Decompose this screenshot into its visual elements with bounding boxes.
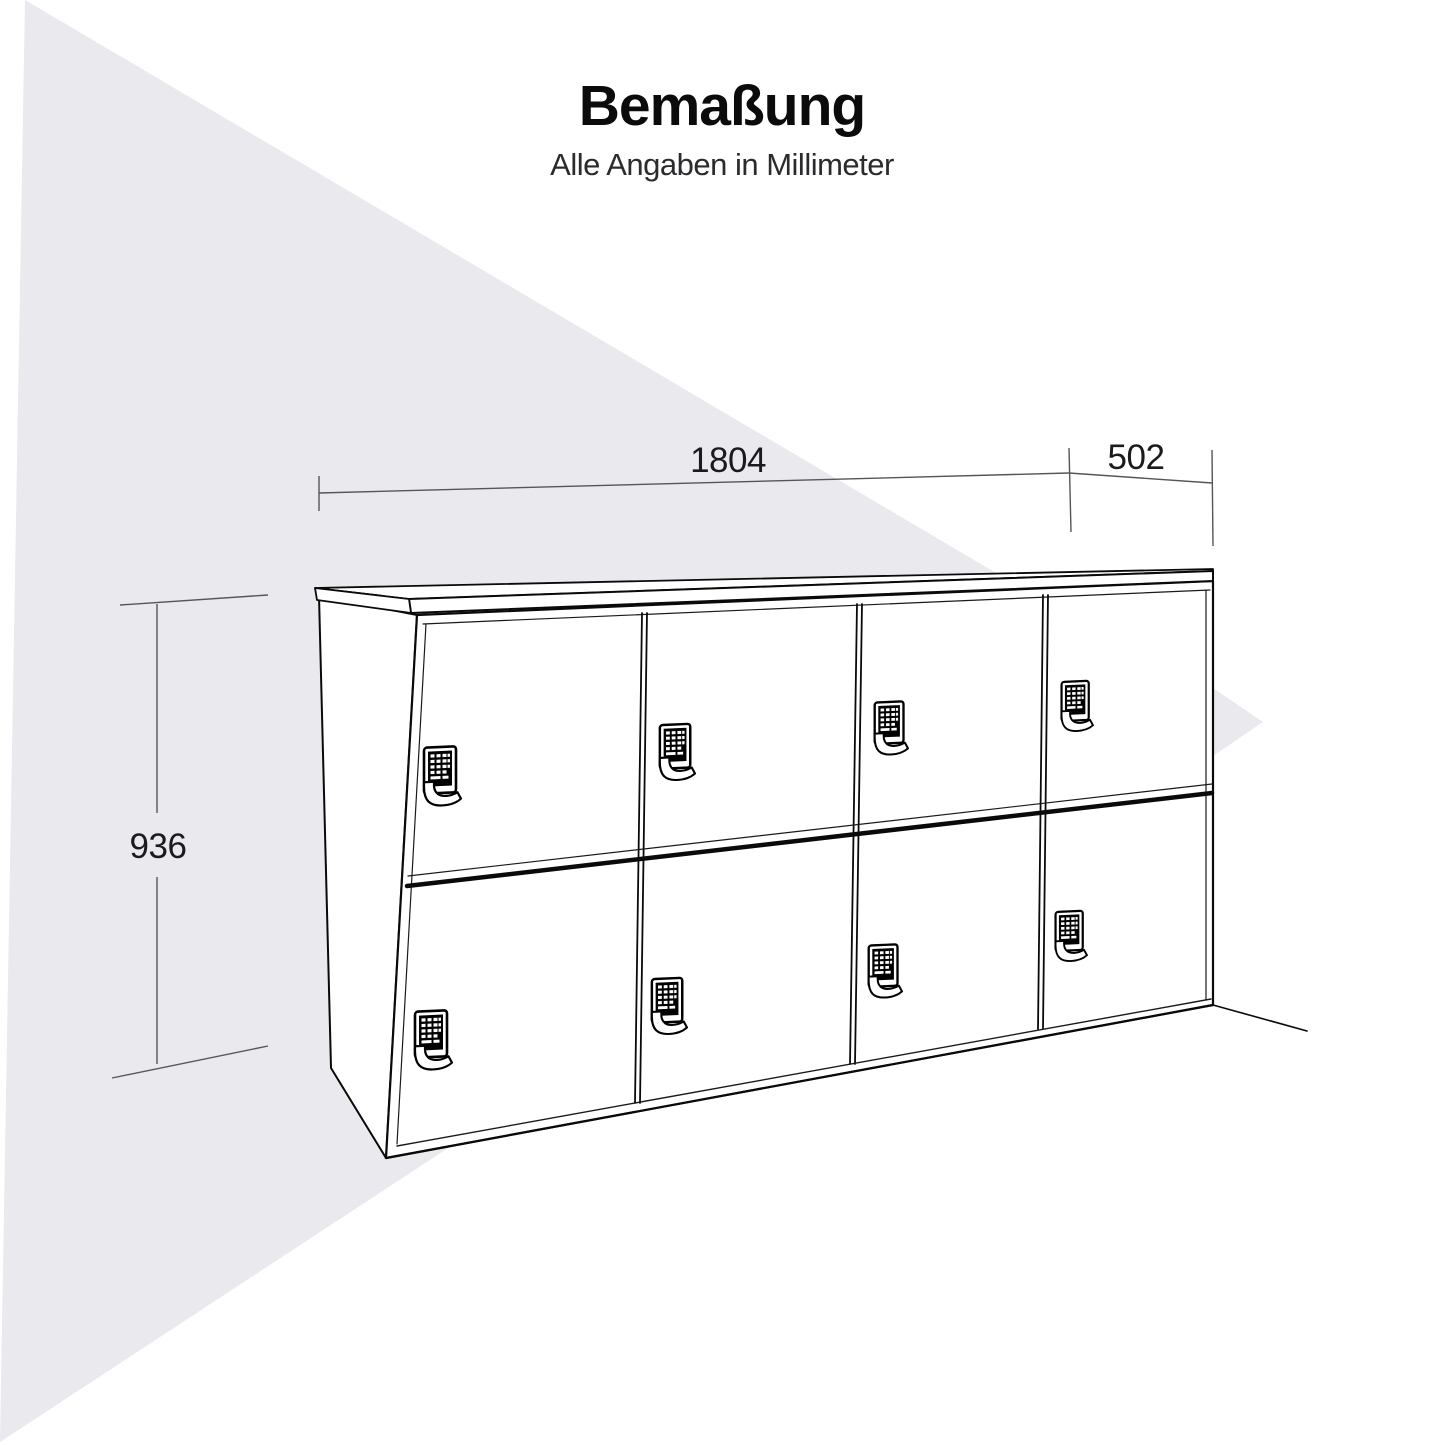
keypad-lock-icon xyxy=(869,944,902,998)
diagram-canvas: 1804 502 936 xyxy=(0,0,1445,1445)
keypad-lock-icon xyxy=(1062,681,1093,732)
width-dimension-label: 1804 xyxy=(690,441,766,480)
keypad-lock-icon xyxy=(875,701,908,755)
keypad-lock-icon xyxy=(415,1010,452,1070)
dimension-diagram-page: 1804 502 936 xyxy=(0,0,1445,1445)
keypad-lock-icon xyxy=(1056,911,1087,962)
page-title: Bemaßung xyxy=(579,74,866,138)
height-dimension-label: 936 xyxy=(130,827,187,866)
keypad-lock-icon xyxy=(424,746,461,806)
keypad-lock-icon xyxy=(660,724,695,781)
page-subtitle: Alle Angaben in Millimeter xyxy=(550,147,894,182)
keypad-lock-icon xyxy=(652,978,687,1035)
depth-dimension-label: 502 xyxy=(1108,438,1165,477)
